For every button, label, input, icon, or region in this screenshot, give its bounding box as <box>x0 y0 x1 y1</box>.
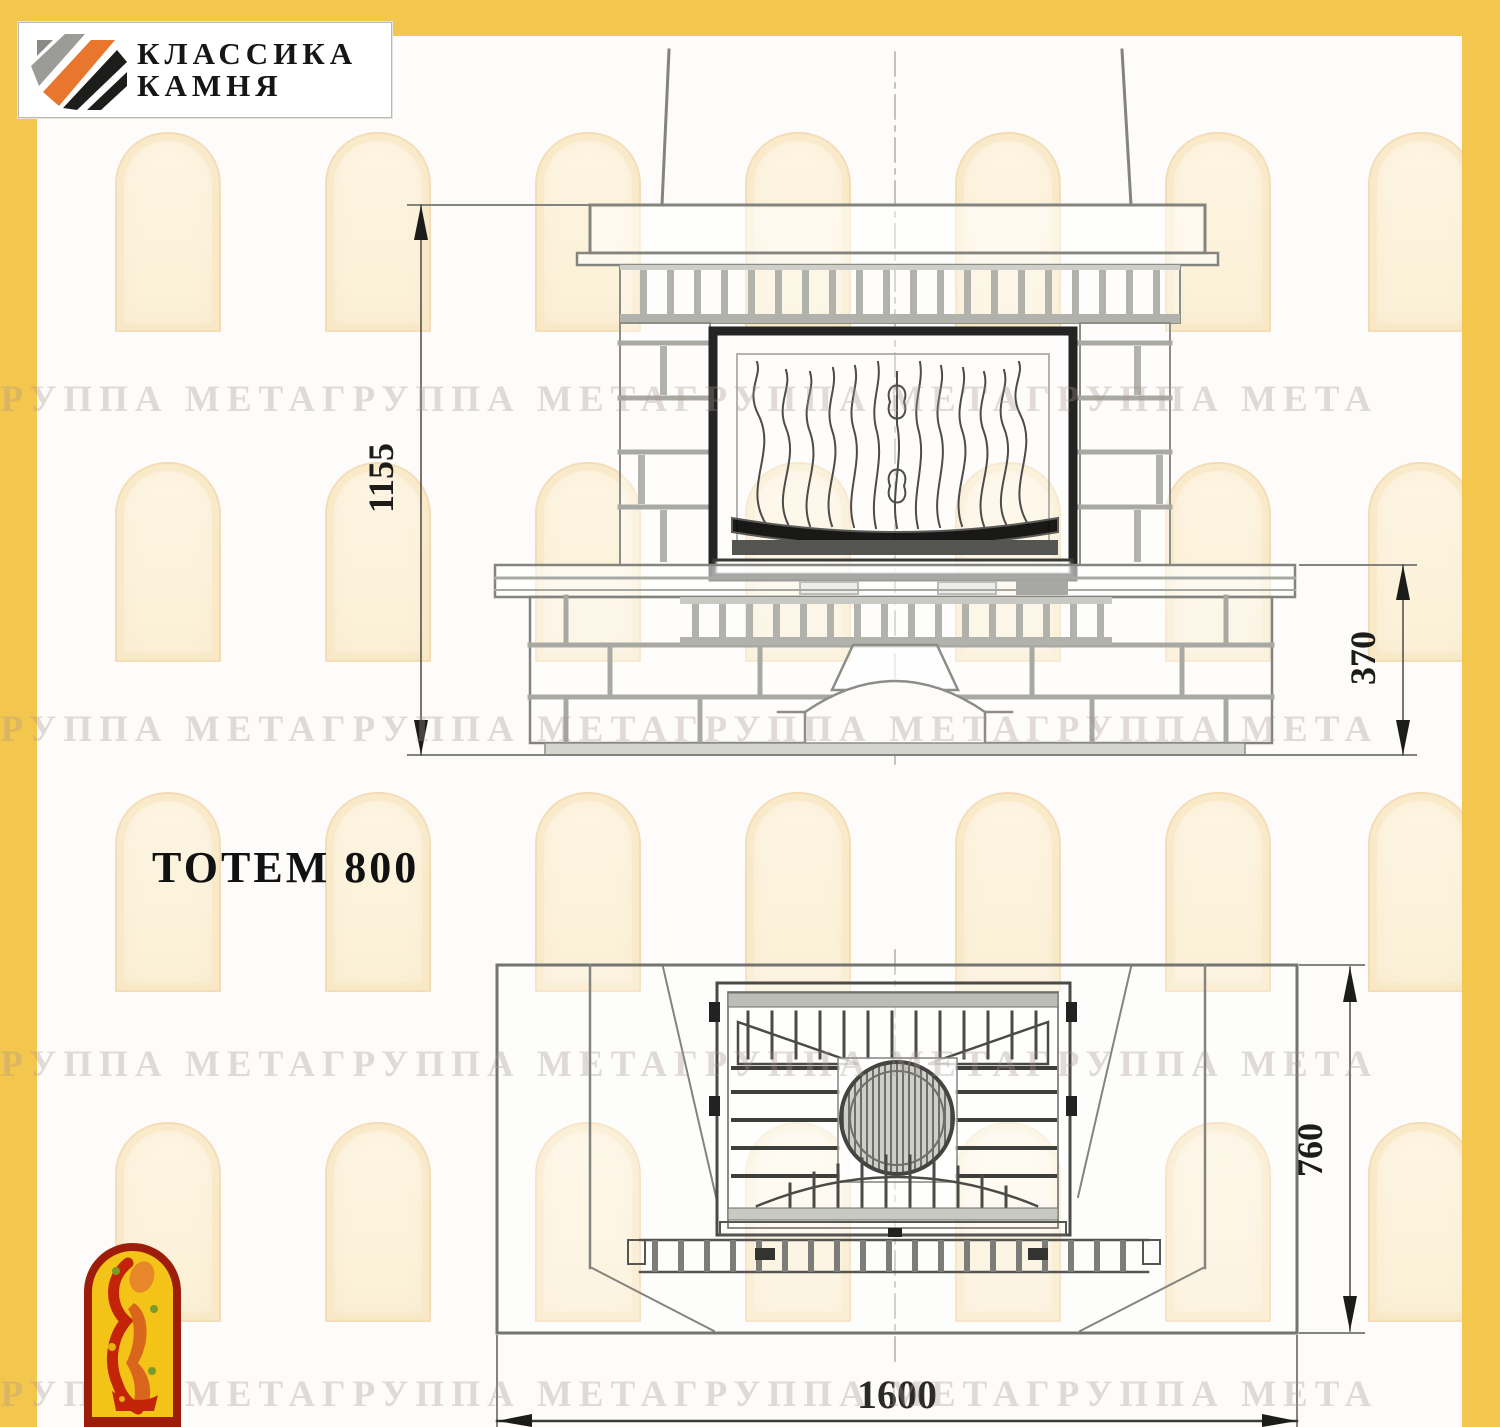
dimension-760: 760 <box>1290 965 1364 1333</box>
dimension-label-plan-depth: 760 <box>1290 1123 1330 1177</box>
base-plinth <box>530 597 1272 755</box>
dimension-label-front-height: 1155 <box>361 443 401 513</box>
dimension-1600: 1600 <box>497 1336 1297 1427</box>
plinth-strip <box>545 743 1245 755</box>
dancing-figure-icon <box>92 1251 173 1417</box>
technical-drawing: 1155 370 <box>0 0 1500 1427</box>
brick-column-right <box>1080 323 1170 565</box>
plan-view: 760 1600 <box>497 950 1364 1427</box>
brick-column-left <box>620 323 710 565</box>
front-elevation: 1155 370 <box>361 50 1416 770</box>
bench-shelf <box>495 565 1295 597</box>
logo-text-line1: КЛАССИКА <box>137 38 357 70</box>
stone-stripes-icon <box>27 30 131 110</box>
dentil-course-top <box>620 265 1180 323</box>
model-title: ТОТЕМ 800 <box>152 842 419 893</box>
dimension-label-plinth-height: 370 <box>1343 631 1383 685</box>
insert-top-view <box>709 983 1077 1237</box>
stained-glass-emblem <box>84 1243 181 1427</box>
mantel-lip <box>577 253 1218 265</box>
chimney-left-line <box>662 50 669 205</box>
logo-text-line2: КАМНЯ <box>137 70 357 102</box>
company-logo: КЛАССИКА КАМНЯ <box>18 22 392 118</box>
dimension-370: 370 <box>1300 565 1416 755</box>
chimney-right-line <box>1122 50 1131 205</box>
dimension-label-plan-width: 1600 <box>857 1372 937 1417</box>
mantel-shelf <box>590 205 1205 253</box>
firebox <box>713 331 1073 577</box>
